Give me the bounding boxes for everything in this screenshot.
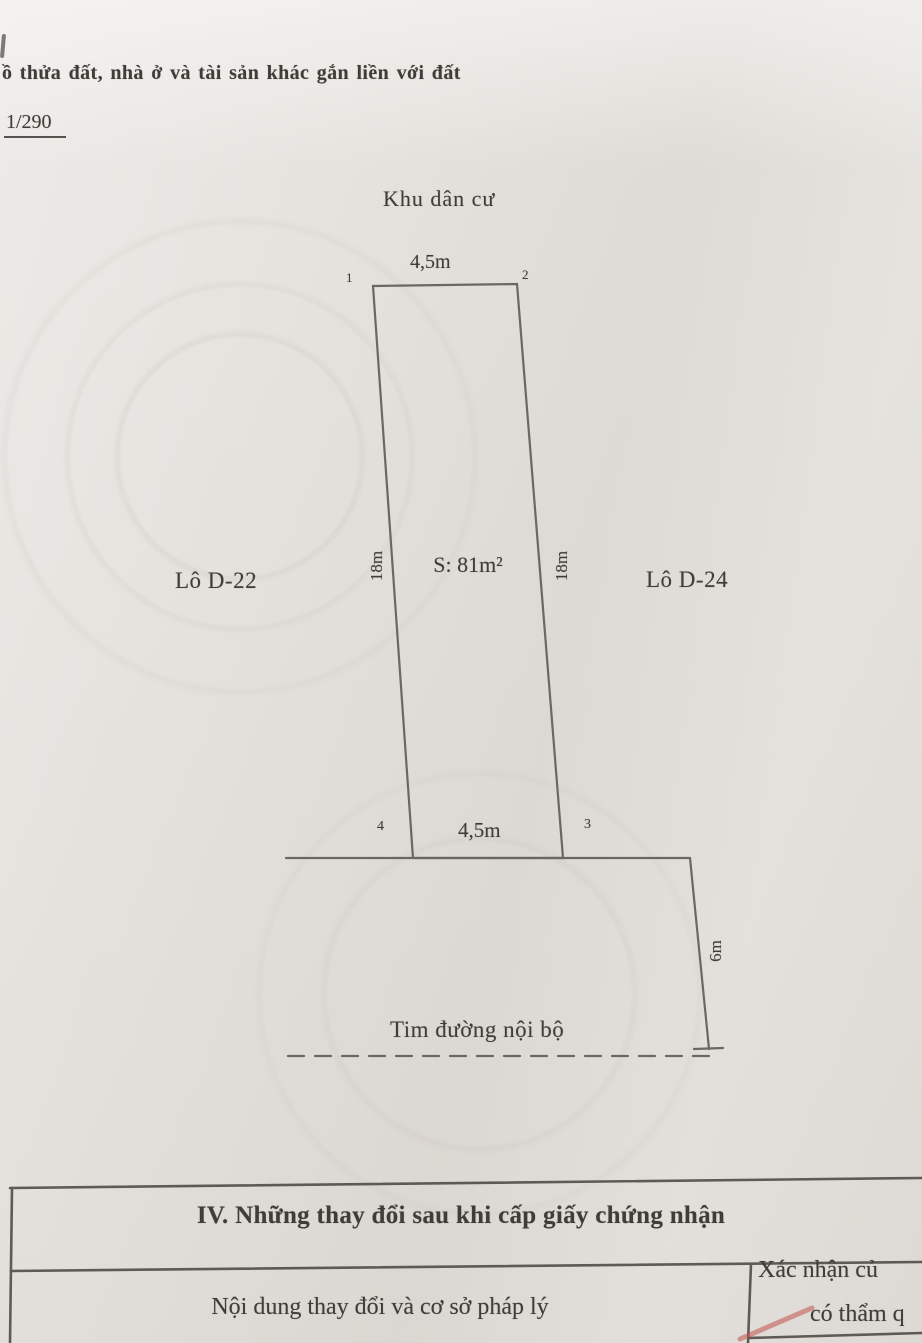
table-right-column-header-line2: có thẩm q	[810, 1301, 905, 1328]
road-side-end-tick	[694, 1048, 723, 1049]
red-pen-mark	[740, 1308, 812, 1339]
adjacent-lot-right: Lô D-24	[646, 567, 728, 593]
dimension-bottom: 4,5m	[458, 818, 501, 843]
adjacent-lot-left: Lô D-22	[175, 568, 257, 594]
residential-area-label: Khu dân cư	[383, 186, 495, 212]
dimension-right: 18m	[552, 536, 572, 596]
table-left-column-header: Nội dung thay đổi và cơ sở pháp lý	[12, 1294, 748, 1321]
road-centerline-label: Tim đường nội bộ	[390, 1017, 564, 1043]
corner-point-3: 3	[584, 817, 591, 833]
dimension-left: 18m	[367, 536, 387, 596]
scanned-certificate-page: ồ thửa đất, nhà ở và tài sản khác gắn li…	[0, 0, 922, 1343]
corner-point-1: 1	[346, 270, 353, 286]
corner-point-2: 2	[522, 267, 529, 283]
dimension-top: 4,5m	[410, 251, 451, 274]
table-column-divider	[748, 1264, 751, 1343]
corner-point-4: 4	[377, 819, 384, 835]
road-width-dimension: 6m	[706, 921, 726, 981]
table-inner-rule	[749, 1333, 922, 1338]
plot-area-value: S: 81m²	[413, 552, 523, 578]
table-top-border	[10, 1178, 922, 1188]
table-right-column-header-line1: Xác nhận củ	[758, 1257, 878, 1284]
section-iv-title: IV. Những thay đổi sau khi cấp giấy chứn…	[12, 1202, 910, 1230]
